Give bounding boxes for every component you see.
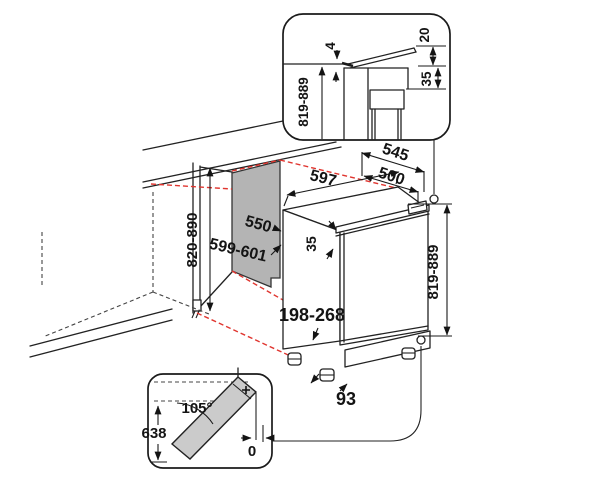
dim-label-plinth: 198-268 bbox=[279, 305, 345, 325]
dim-label-depth-total: 545 bbox=[380, 141, 411, 165]
worktop-top-edge bbox=[143, 121, 283, 150]
dim-label-clearance: 35 bbox=[419, 71, 434, 87]
dim-label-depth-top: 500 bbox=[376, 165, 407, 189]
cabinet-foot-detail bbox=[193, 300, 201, 311]
dim-label-flap: 20 bbox=[417, 27, 432, 42]
dim-label-height: 819-889 bbox=[425, 244, 442, 299]
inset-connector-dot-top bbox=[430, 195, 438, 203]
inset-connector-dot-bottom bbox=[417, 336, 425, 344]
dim-label-gap: 4 bbox=[323, 42, 338, 50]
dim-arrow-foot-l bbox=[311, 374, 319, 383]
dim-label-trim: 35 bbox=[303, 236, 319, 252]
dim-label-foot: 93 bbox=[336, 389, 356, 409]
dim-label-niche-height: 820-890 bbox=[184, 212, 201, 267]
dim-ext-width-l bbox=[284, 196, 288, 206]
dim-label-width: 597 bbox=[308, 167, 338, 190]
floor-line bbox=[30, 309, 172, 346]
floor-line2 bbox=[30, 320, 172, 357]
projection-mid bbox=[151, 184, 232, 189]
inset-hinge-box bbox=[370, 90, 404, 109]
niche-floor-edge bbox=[200, 272, 232, 307]
top-detail-inset: 4 20 35 819-889 bbox=[283, 14, 450, 203]
installation-diagram: 597 545 500 550 599-601 820-890 35 819-8… bbox=[0, 0, 600, 480]
hidden-edge-floor-left bbox=[43, 292, 153, 337]
dim-label-inset-height: 819-889 bbox=[296, 77, 311, 127]
dim-label-door-height: 638 bbox=[141, 425, 166, 442]
appliance-left-face bbox=[283, 210, 340, 349]
appliance bbox=[283, 187, 430, 381]
dim-label-door-gap: 0 bbox=[248, 443, 256, 460]
diagram-drawing: 597 545 500 550 599-601 820-890 35 819-8… bbox=[0, 0, 600, 480]
